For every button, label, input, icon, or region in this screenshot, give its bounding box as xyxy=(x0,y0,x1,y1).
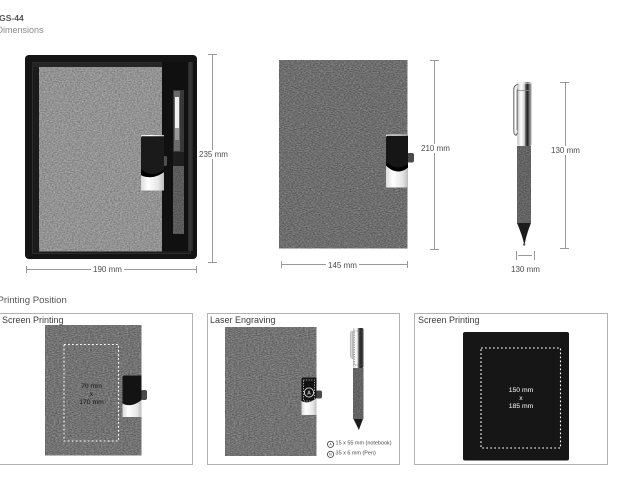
svg-text:150 mm: 150 mm xyxy=(508,387,533,394)
svg-text:185 mm: 185 mm xyxy=(508,403,533,410)
svg-text:A: A xyxy=(307,390,311,396)
svg-text:170 mm: 170 mm xyxy=(79,399,104,406)
svg-text:x: x xyxy=(89,391,93,398)
svg-text:70 mm: 70 mm xyxy=(81,383,102,390)
svg-text:x: x xyxy=(519,395,523,402)
